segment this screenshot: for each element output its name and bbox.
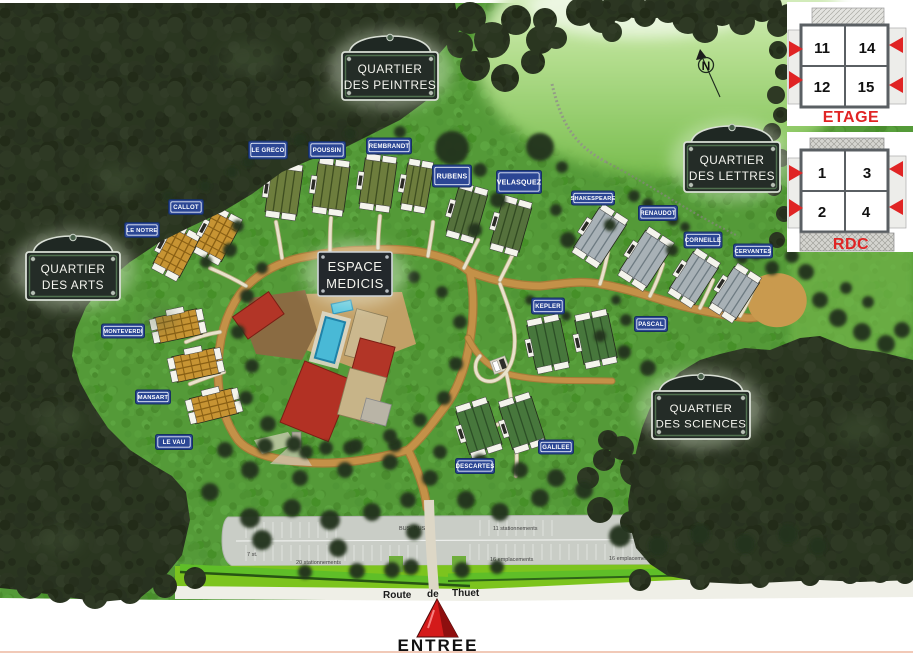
svg-text:11: 11 [814,40,830,57]
svg-text:14: 14 [859,40,876,57]
svg-text:Route: Route [383,590,412,601]
svg-text:ETAGE: ETAGE [823,109,879,126]
svg-text:SHAKESPEARE: SHAKESPEARE [571,196,616,202]
svg-text:KEPLER: KEPLER [535,304,561,310]
svg-text:11 stationnements: 11 stationnements [493,526,538,532]
svg-text:MANSART: MANSART [138,395,169,401]
svg-text:DES LETTRES: DES LETTRES [689,169,775,183]
svg-text:CERVANTES: CERVANTES [734,249,771,255]
svg-text:RENAUDOT: RENAUDOT [640,211,676,217]
svg-text:DES SCIENCES: DES SCIENCES [656,418,747,430]
svg-text:ESPACE: ESPACE [328,259,383,274]
svg-text:LE GRECO: LE GRECO [252,148,285,154]
svg-text:MONTEVERDI: MONTEVERDI [103,329,143,335]
svg-text:DES ARTS: DES ARTS [42,278,104,292]
svg-text:POUSSIN: POUSSIN [313,148,341,154]
svg-text:Thuet: Thuet [452,588,480,599]
svg-text:3: 3 [863,165,871,182]
svg-text:1: 1 [818,165,826,182]
svg-text:CORNEILLE: CORNEILLE [685,238,721,244]
svg-text:12: 12 [814,79,831,96]
svg-text:PASCAL: PASCAL [638,322,664,328]
svg-text:2: 2 [818,204,826,221]
svg-text:DESCARTES: DESCARTES [456,464,495,470]
svg-text:VELASQUEZ: VELASQUEZ [497,180,542,187]
svg-text:4: 4 [862,204,871,221]
svg-text:20 stationnements: 20 stationnements [296,560,341,566]
svg-text:QUARTIER: QUARTIER [670,403,733,415]
svg-text:LE NOTRE: LE NOTRE [127,228,158,234]
svg-text:QUARTIER: QUARTIER [41,262,106,276]
svg-text:QUARTIER: QUARTIER [700,153,765,167]
svg-text:LE VAU: LE VAU [163,440,186,446]
svg-text:DES PEINTRES: DES PEINTRES [344,78,437,92]
svg-text:N: N [702,59,711,73]
svg-text:MEDICIS: MEDICIS [326,276,384,291]
svg-text:RUBENS: RUBENS [437,174,468,181]
svg-text:QUARTIER: QUARTIER [358,62,423,76]
svg-text:7 st.: 7 st. [247,552,258,558]
svg-text:RDC: RDC [833,236,869,253]
svg-text:CALLOT: CALLOT [173,205,199,211]
svg-text:REMBRANDT: REMBRANDT [369,144,410,150]
svg-text:15: 15 [858,79,875,96]
svg-text:GALILEE: GALILEE [542,445,569,451]
svg-text:de: de [427,589,439,600]
